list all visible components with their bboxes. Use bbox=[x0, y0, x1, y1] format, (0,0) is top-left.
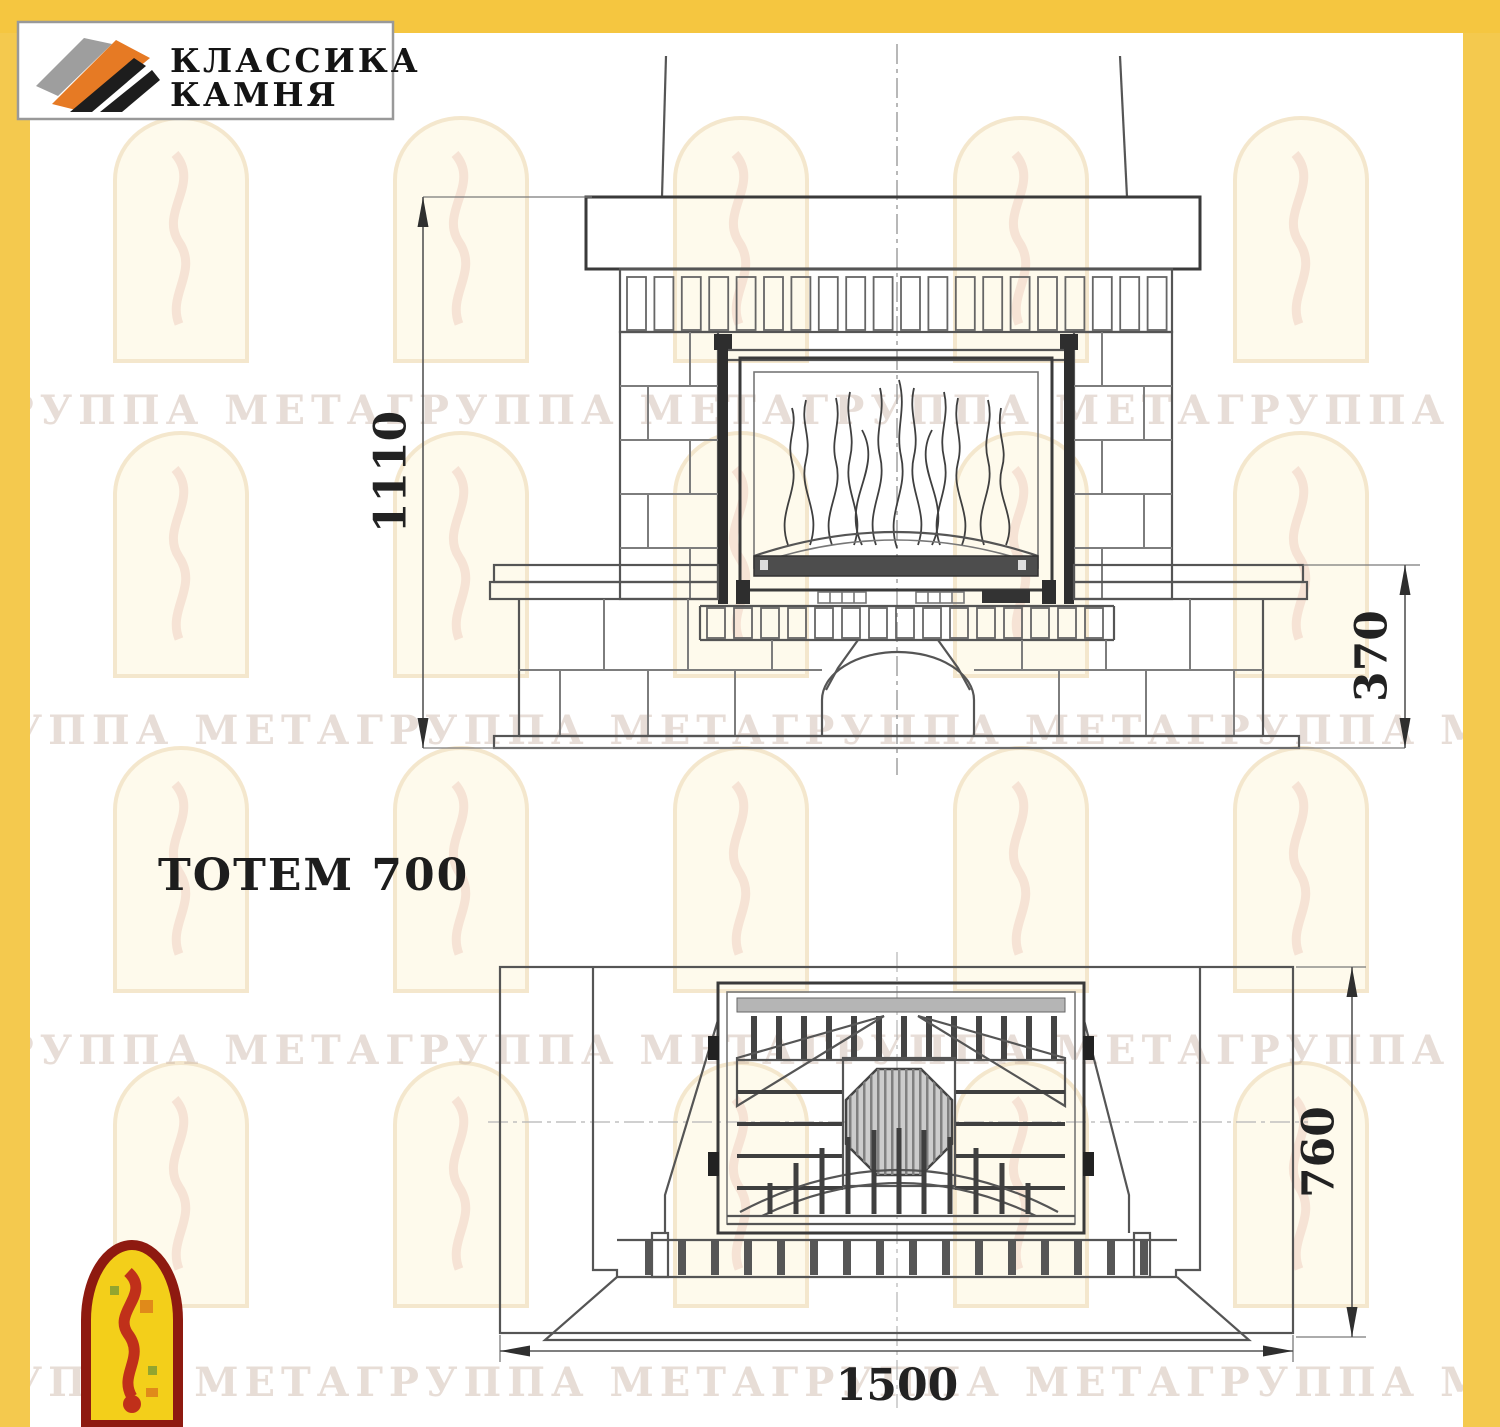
border-right bbox=[1463, 33, 1500, 1427]
nameplate bbox=[982, 590, 1030, 603]
fireplace-technical-drawing: ГРУППА МЕТАГРУППА МЕТАГРУППА МЕТАГРУППА … bbox=[0, 0, 1500, 1427]
border-left bbox=[0, 33, 30, 1427]
firebox-frame-right bbox=[1064, 334, 1074, 604]
footer-arch-logo bbox=[86, 1245, 178, 1425]
watermark-text: ГРУППА МЕТАГРУППА МЕТАГРУППА МЕТАГРУППА … bbox=[0, 1027, 1500, 1074]
dim-label-height: 1110 bbox=[365, 411, 416, 533]
dim-label-width: 1500 bbox=[836, 1360, 958, 1411]
dim-label-depth: 760 bbox=[1293, 1106, 1344, 1198]
model-title: ТОТЕМ 700 bbox=[158, 850, 469, 901]
watermark-text: ГРУППА МЕТАГРУППА МЕТАГРУППА МЕТАГРУППА … bbox=[0, 387, 1500, 434]
ash-lip-bar bbox=[754, 556, 1038, 576]
dim-label-base-height: 370 bbox=[1346, 610, 1397, 702]
firebox-frame-left bbox=[718, 334, 728, 604]
back-hatch-bar bbox=[737, 998, 1065, 1012]
drawing-sheet: ГРУППА МЕТАГРУППА МЕТАГРУППА МЕТАГРУППА … bbox=[0, 0, 1500, 1427]
air-vents bbox=[818, 590, 1030, 603]
company-logo: КЛАССИКА КАМНЯ bbox=[18, 22, 421, 119]
watermark-text: ГРУППА МЕТАГРУППА МЕТАГРУППА МЕТАГРУППА … bbox=[0, 1359, 1500, 1406]
logo-text-line2: КАМНЯ bbox=[170, 75, 339, 114]
